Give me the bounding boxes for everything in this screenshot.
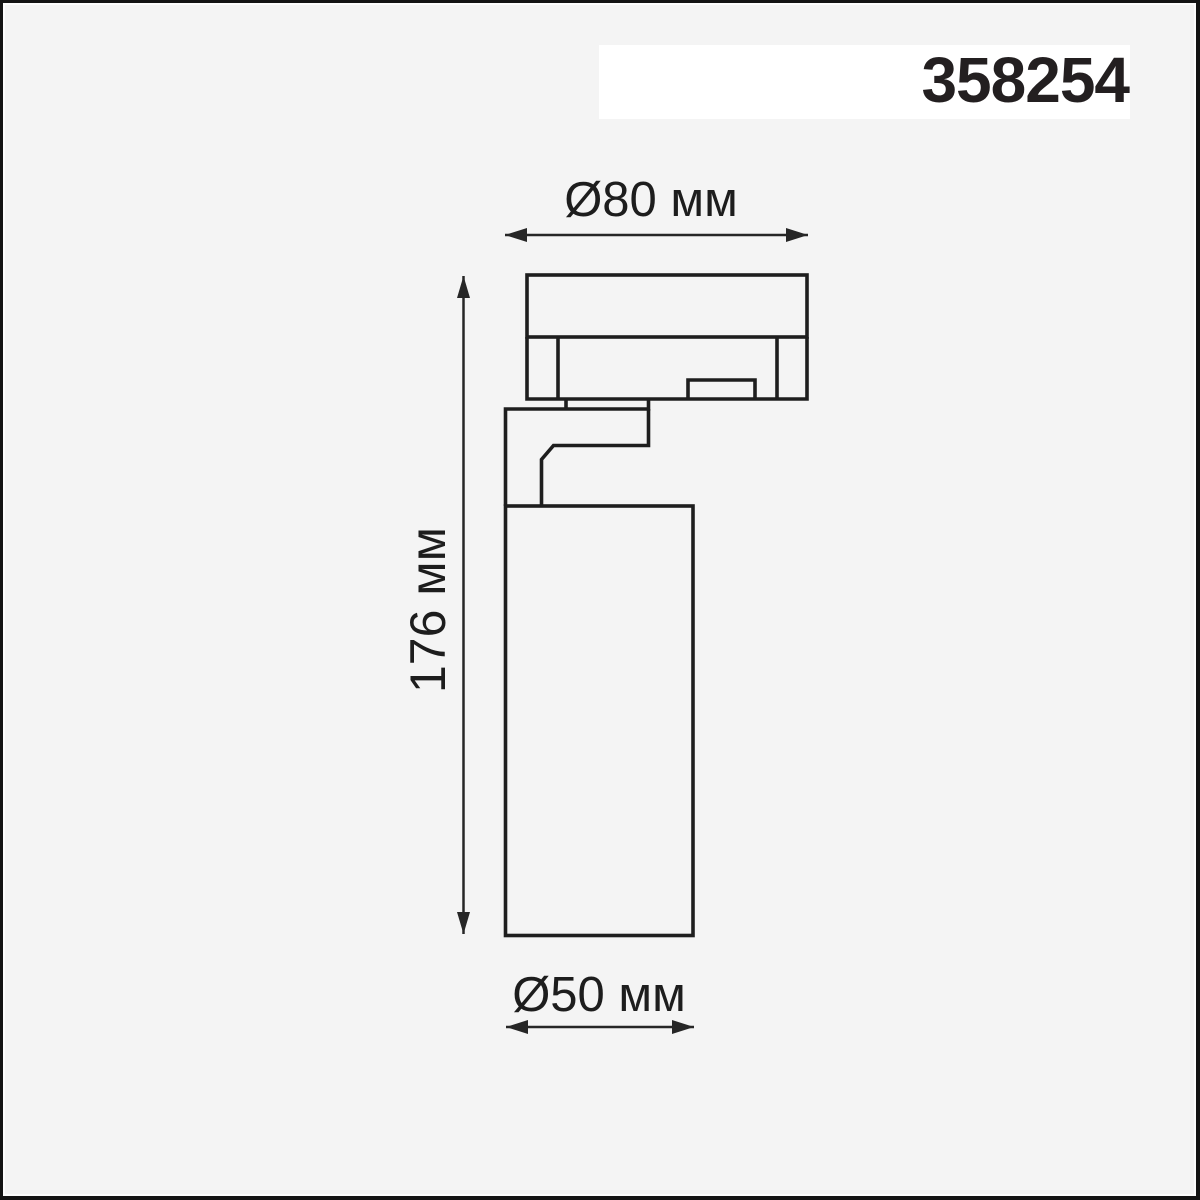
svg-text:Ø50 мм: Ø50 мм [512, 968, 686, 1022]
svg-text:176 мм: 176 мм [400, 527, 456, 693]
svg-text:Ø80 мм: Ø80 мм [564, 173, 738, 227]
